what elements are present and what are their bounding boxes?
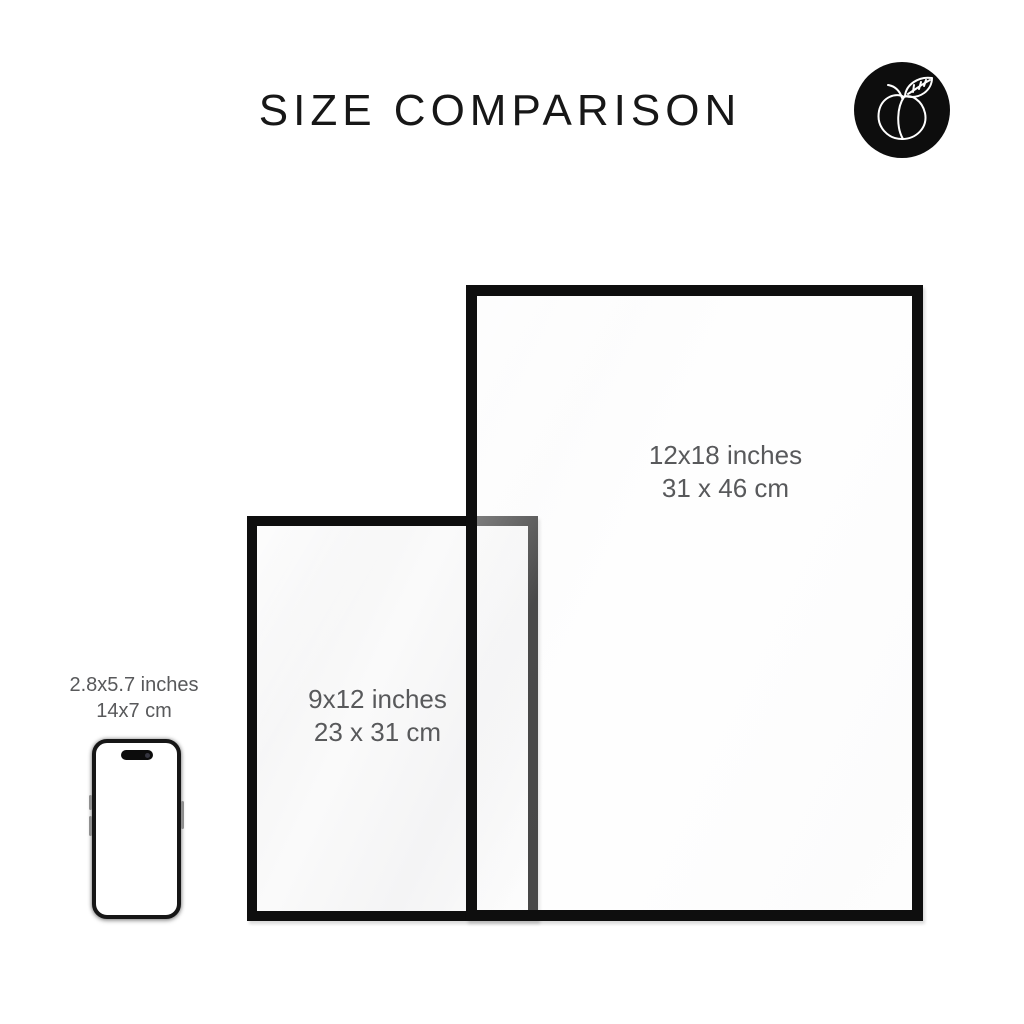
phone-size-label: 2.8x5.7 inches 14x7 cm	[34, 672, 234, 724]
large-frame-glass	[477, 296, 912, 910]
phone-volume-up-button	[89, 795, 92, 810]
small-frame-size-inches: 9x12 inches	[257, 683, 498, 716]
phone-mockup	[92, 739, 181, 919]
small-frame-label: 9x12 inches 23 x 31 cm	[257, 683, 498, 749]
phone-dynamic-island	[121, 750, 153, 760]
large-frame-label: 12x18 inches 31 x 46 cm	[539, 439, 912, 505]
phone-power-button	[181, 801, 184, 829]
phone-volume-down-button	[89, 816, 92, 836]
phone-camera-icon	[145, 753, 150, 758]
phone-size-cm: 14x7 cm	[34, 698, 234, 724]
large-frame: 12x18 inches 31 x 46 cm	[466, 285, 923, 921]
small-frame-size-cm: 23 x 31 cm	[257, 716, 498, 749]
large-frame-size-cm: 31 x 46 cm	[539, 472, 912, 505]
large-frame-size-inches: 12x18 inches	[539, 439, 912, 472]
brand-badge	[852, 60, 952, 160]
phone-size-inches: 2.8x5.7 inches	[34, 672, 234, 698]
size-comparison-canvas: { "title": "SIZE COMPARISON", "badge": {…	[0, 0, 1024, 1024]
page-title: SIZE COMPARISON	[0, 86, 1000, 136]
peach-icon	[852, 60, 952, 160]
